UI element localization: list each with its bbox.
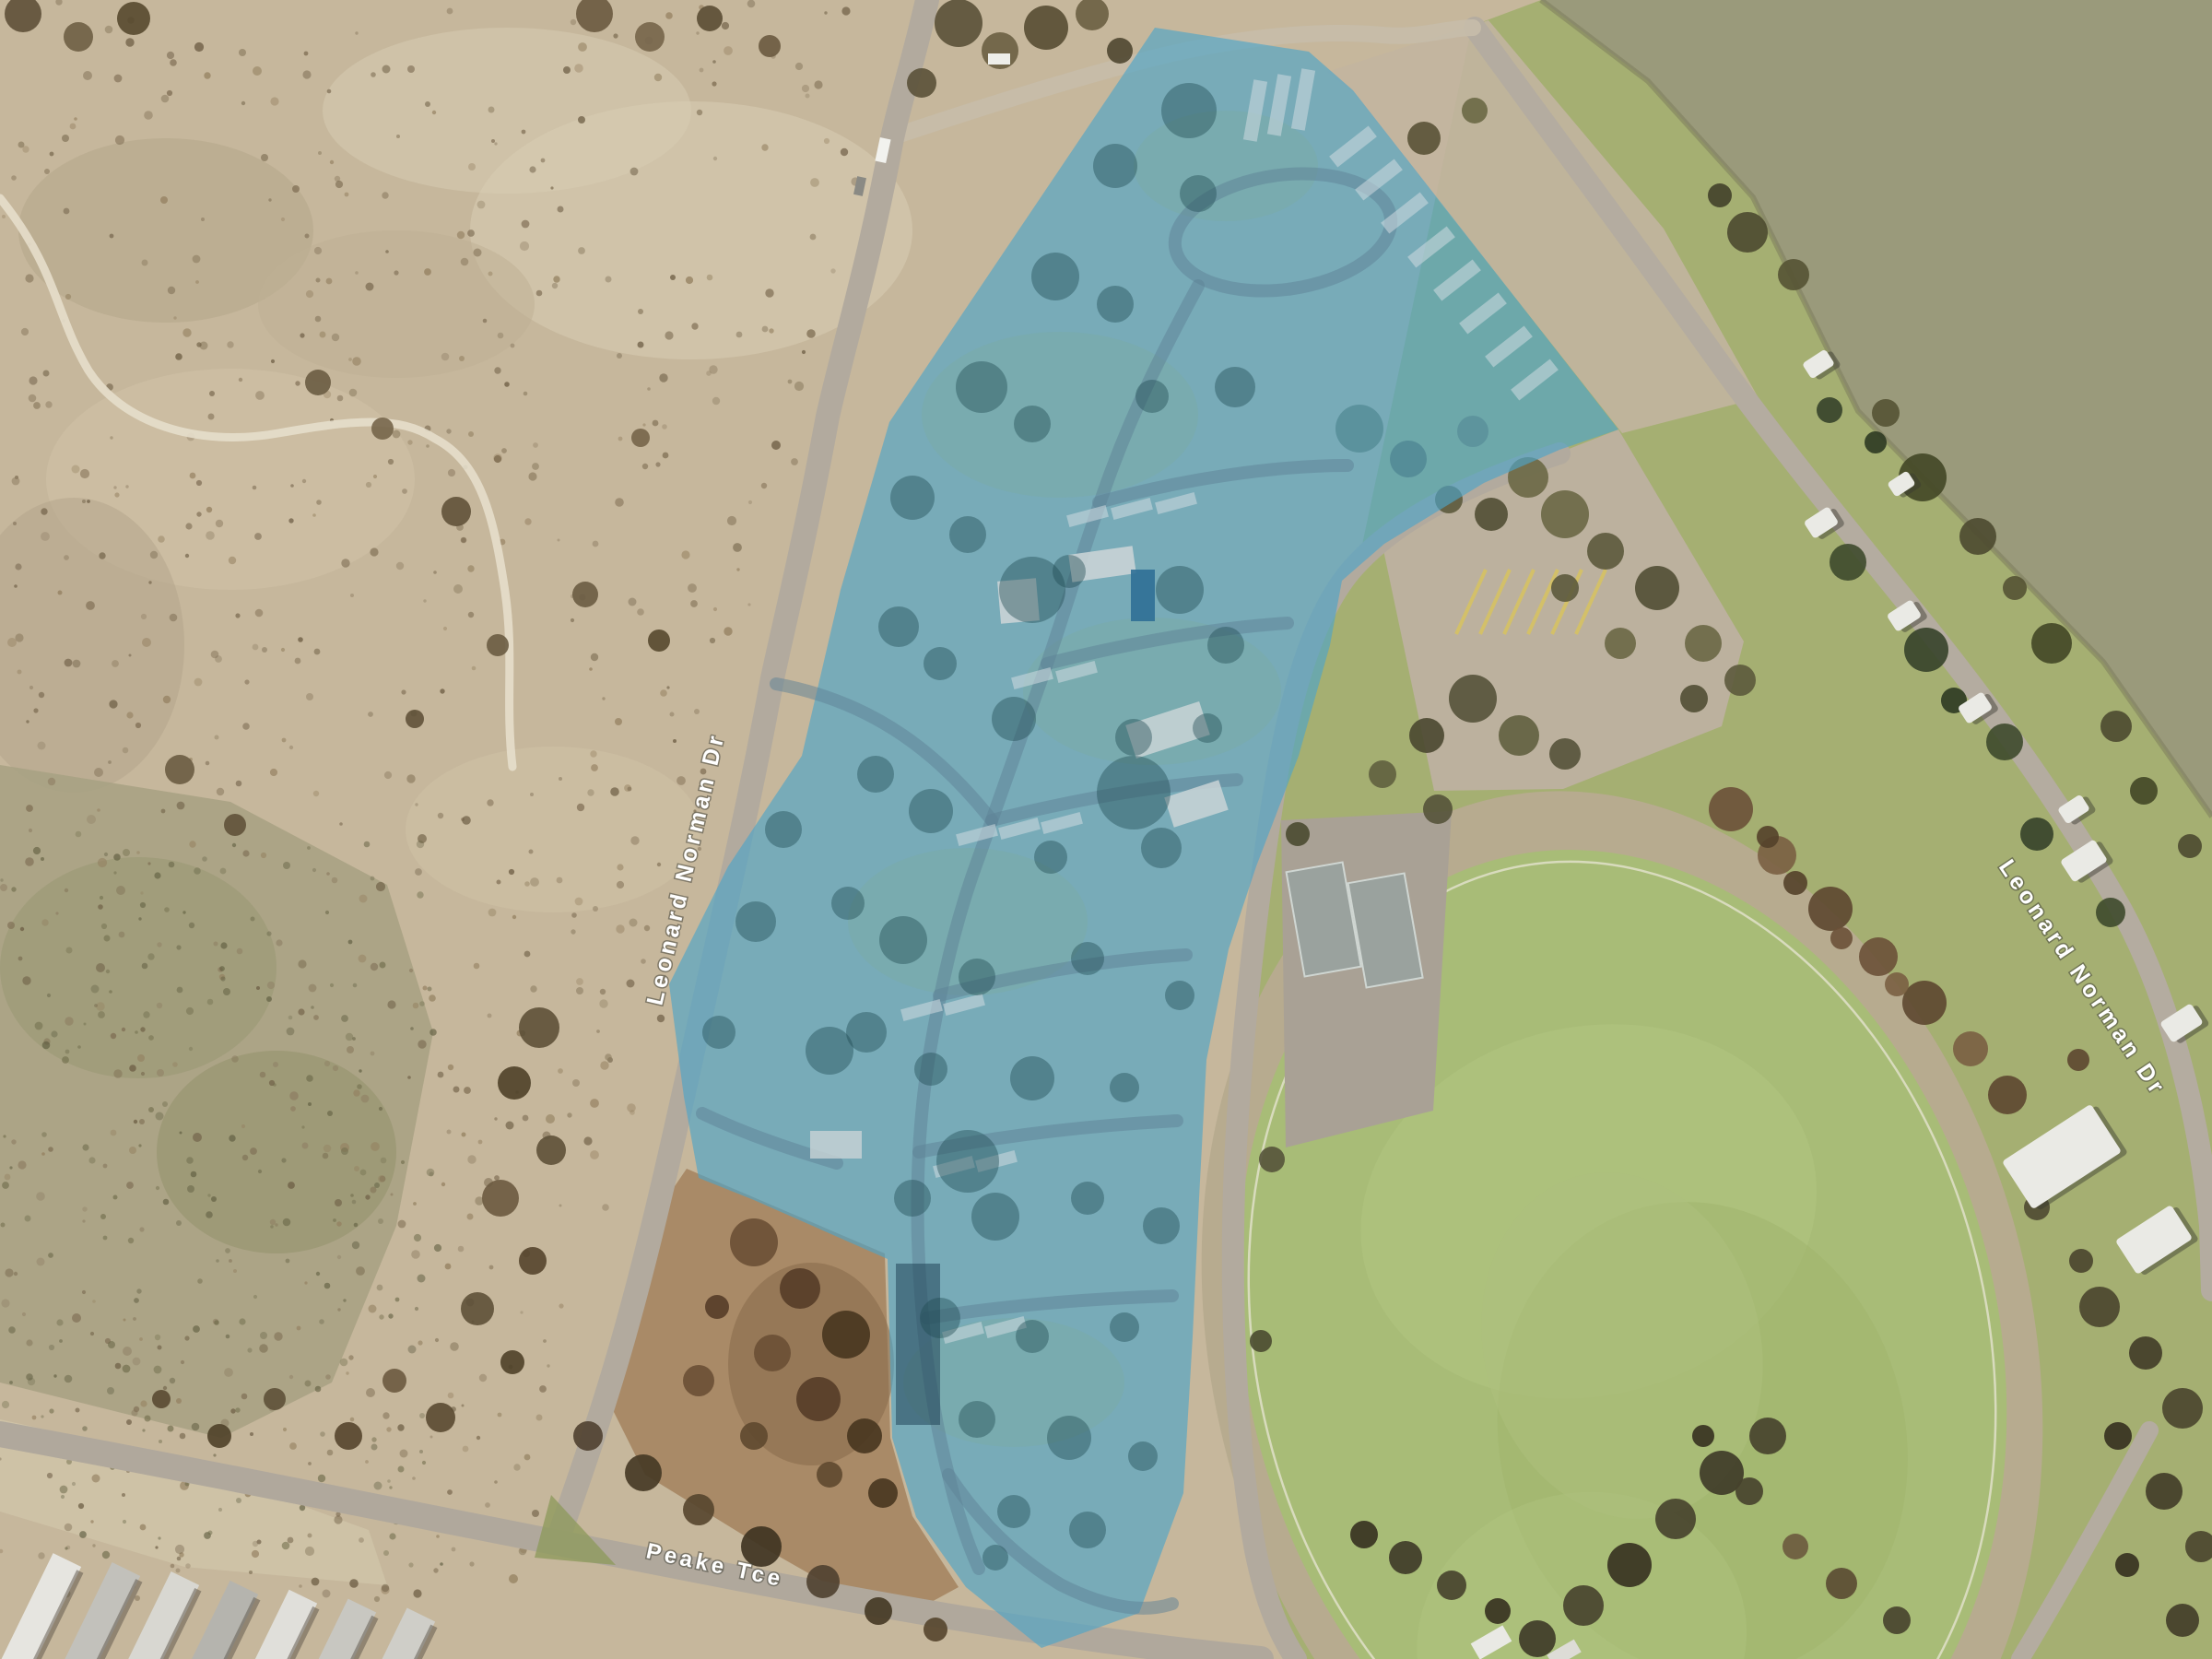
scrub-speckle [282, 738, 287, 743]
scrub-speckle [382, 65, 391, 74]
scrub-speckle [167, 52, 174, 59]
scrub-speckle [189, 1047, 193, 1051]
scrub-speckle [724, 46, 733, 55]
scrub-speckle [194, 867, 201, 875]
scrub-speckle [140, 1400, 147, 1406]
scrub-speckle [158, 1346, 162, 1350]
scrub-speckle [605, 1053, 612, 1061]
scrub-speckle [325, 1374, 331, 1380]
scrub-speckle [700, 68, 704, 73]
scrub-speckle [33, 847, 41, 854]
tree [907, 68, 936, 98]
scrub-speckle [630, 836, 639, 844]
scrub-speckle [415, 1307, 418, 1311]
scrub-speckle [241, 1124, 245, 1128]
scrub-speckle [18, 957, 23, 961]
scrub-speckle [283, 1428, 287, 1431]
scrub-speckle [369, 1305, 377, 1313]
scrub-speckle [522, 220, 530, 229]
scrub-speckle [802, 350, 806, 354]
scrub-speckle [330, 160, 334, 164]
scrub-speckle [474, 963, 480, 970]
scrub-speckle [235, 613, 240, 618]
scrub-speckle [168, 287, 175, 294]
scrub-speckle [733, 543, 742, 552]
scrub-speckle [494, 1175, 500, 1181]
scrub-speckle [214, 942, 218, 947]
scrub-speckle [412, 1477, 416, 1480]
scrub-speckle [111, 1130, 117, 1136]
scrub-speckle [255, 391, 265, 400]
scrub-speckle [824, 138, 829, 144]
scrub-speckle [15, 633, 23, 641]
scrub-speckle [1, 1223, 6, 1228]
scrub-speckle [320, 332, 326, 338]
tree [683, 1365, 714, 1396]
scrub-speckle [409, 969, 413, 972]
tree [648, 629, 670, 652]
scrub-speckle [722, 22, 729, 29]
scrub-speckle [94, 768, 103, 777]
scrub-speckle [242, 850, 249, 856]
tree [519, 1007, 559, 1048]
scrub-speckle [694, 709, 700, 714]
scrub-speckle [366, 482, 371, 488]
scrub-speckle [571, 912, 577, 918]
scrub-speckle [123, 1365, 131, 1373]
scrub-speckle [364, 841, 371, 848]
tree [1462, 98, 1488, 124]
scrub-speckle [295, 381, 300, 385]
park-courts [896, 1264, 940, 1425]
scrub-speckle [241, 101, 245, 105]
scrub-speckle [5, 1268, 13, 1277]
tree [817, 1462, 842, 1488]
scrub-speckle [65, 1524, 73, 1532]
scrub-speckle [26, 1373, 33, 1381]
scrub-speckle [591, 653, 598, 661]
scrub-speckle [376, 882, 385, 891]
park-tree [920, 1298, 960, 1338]
scrub-speckle [712, 81, 716, 86]
tree [697, 6, 723, 31]
park-tree [1069, 1512, 1106, 1548]
scrub-speckle [557, 877, 563, 884]
scrub-speckle [318, 151, 322, 155]
scrub-speckle [353, 983, 358, 988]
scrub-speckle [379, 1107, 382, 1111]
scrub-speckle [163, 696, 171, 703]
scrub-speckle [325, 911, 329, 914]
scrub-speckle [283, 1218, 291, 1227]
scrub-speckle [123, 849, 130, 856]
scrub-speckle [448, 1393, 454, 1399]
scrub-speckle [771, 441, 781, 450]
scrub-speckle [124, 1319, 126, 1322]
scrub-speckle [267, 982, 275, 989]
tree [1817, 397, 1842, 423]
satellite-map-canvas[interactable]: Leonard Norman Dr Leonard Norman Dr Peak… [0, 0, 2212, 1659]
scrub-speckle [298, 1008, 304, 1015]
park-tree [1071, 1182, 1104, 1215]
scrub-speckle [261, 853, 266, 858]
scrub-speckle [5, 1174, 11, 1181]
scrub-speckle [323, 1153, 329, 1159]
scrub-speckle [233, 1269, 237, 1273]
scrub-speckle [628, 787, 632, 792]
scrub-speckle [226, 1335, 230, 1339]
scrub-speckle [94, 1004, 98, 1007]
scrub-speckle [288, 1537, 294, 1544]
tree [1724, 665, 1756, 696]
scrub-speckle [662, 424, 667, 429]
tree [1437, 1571, 1466, 1600]
park-tree [1180, 175, 1217, 212]
scrub-speckle [384, 771, 392, 779]
scrub-speckle [162, 1101, 168, 1107]
tree [868, 1478, 898, 1508]
scrub-speckle [487, 799, 493, 806]
scrub-speckle [91, 985, 100, 994]
scrub-speckle [142, 260, 148, 266]
scrub-speckle [327, 1111, 333, 1116]
scrub-speckle [111, 1033, 116, 1039]
scrub-speckle [567, 1112, 571, 1117]
tree [1692, 1425, 1714, 1447]
scrub-speckle [157, 942, 161, 947]
scrub-speckle [371, 72, 376, 77]
tree [1904, 628, 1948, 672]
tree [2020, 818, 2053, 851]
scrub-speckle [289, 746, 293, 749]
scrub-speckle [25, 274, 33, 282]
scrub-speckle [498, 333, 504, 339]
scrub-speckle [72, 465, 80, 474]
scrub-speckle [143, 1011, 149, 1018]
scrub-speckle [258, 1170, 262, 1173]
scrub-speckle [136, 851, 140, 854]
oval-west-parking [1281, 811, 1452, 1147]
scrub-speckle [354, 1166, 359, 1171]
scrub-speckle [168, 1426, 174, 1432]
scrub-speckle [241, 1394, 248, 1400]
scrub-speckle [224, 1368, 233, 1377]
tree [2166, 1604, 2199, 1637]
scrub-speckle [578, 247, 585, 254]
scrub-speckle [366, 1388, 375, 1397]
scrub-speckle [406, 774, 415, 782]
scrub-speckle [382, 192, 388, 198]
scrub-speckle [113, 1069, 122, 1077]
park-tree [1115, 719, 1152, 756]
scrub-speckle [312, 513, 316, 517]
scrub-speckle [3, 1135, 6, 1137]
scrub-speckle [170, 59, 177, 66]
scrub-speckle [82, 1290, 86, 1294]
park-tree [1010, 1056, 1054, 1100]
scrub-speckle [59, 1339, 63, 1343]
scrub-speckle [688, 583, 697, 593]
scrub-speckle [382, 1584, 389, 1592]
scrub-speckle [546, 1114, 555, 1124]
scrub-speckle [250, 1432, 253, 1436]
park-tree [890, 476, 935, 520]
scrub-speckle [227, 341, 233, 347]
scrub-speckle [154, 872, 160, 878]
scrub-speckle [176, 1569, 181, 1573]
scrub-speckle [352, 1241, 359, 1249]
scrub-speckle [395, 1298, 400, 1302]
scrub-speckle [547, 1364, 549, 1367]
tree [1986, 724, 2023, 760]
scrub-speckle [788, 380, 793, 384]
scrub-speckle [113, 853, 121, 861]
scrub-speckle [762, 326, 769, 333]
scrub-speckle [29, 829, 32, 832]
scrub-speckle [242, 1155, 248, 1160]
scrub-speckle [371, 963, 378, 971]
scrub-speckle [155, 1546, 158, 1548]
scrub-speckle [356, 1266, 365, 1276]
tree [1563, 1585, 1604, 1626]
scrub-speckle [810, 178, 819, 187]
scrub-speckle [45, 401, 52, 407]
scrub-speckle [180, 1433, 186, 1440]
scrub-speckle [237, 948, 243, 955]
scrub-speckle [239, 1318, 245, 1324]
scrub-speckle [348, 358, 352, 361]
scrub-speckle [350, 594, 354, 597]
scrub-speckle [468, 431, 474, 437]
scrub-speckle [374, 1596, 380, 1602]
scrub-speckle [170, 1378, 175, 1383]
scrub-speckle [123, 1347, 132, 1356]
scrub-speckle [666, 686, 669, 688]
scrub-speckle [189, 923, 194, 928]
scrub-speckle [197, 1278, 203, 1284]
tree [625, 1454, 662, 1491]
scrub-speckle [670, 275, 676, 280]
scrub-speckle [352, 1200, 357, 1205]
scrub-speckle [483, 319, 488, 324]
scrub-speckle [761, 144, 768, 150]
scrub-speckle [141, 1072, 145, 1076]
scrub-speckle [423, 986, 428, 991]
scrub-speckle [618, 437, 623, 441]
scrub-speckle [417, 891, 423, 898]
scrub-speckle [136, 1288, 141, 1293]
scrub-speckle [418, 1040, 426, 1048]
scrub-speckle [185, 523, 192, 529]
scrub-speckle [275, 1223, 277, 1226]
park-tree [982, 1545, 1008, 1571]
scrub-speckle [218, 1508, 222, 1512]
scrub-speckle [463, 1446, 469, 1453]
scrub-speckle [374, 1482, 382, 1490]
scrub-speckle [307, 846, 311, 850]
tree [1407, 122, 1441, 155]
scrub-speckle [332, 334, 339, 341]
scrub-speckle [630, 168, 639, 176]
scrub-speckle [637, 608, 644, 616]
scrub-speckle [326, 872, 330, 876]
scrub-speckle [524, 1454, 531, 1461]
scrub-speckle [323, 1590, 331, 1598]
scrub-speckle [125, 485, 128, 488]
scrub-speckle [170, 614, 178, 622]
tree [1830, 927, 1853, 949]
scrub-speckle [2, 1401, 9, 1408]
scrub-speckle [357, 1084, 362, 1089]
scrub-speckle [262, 647, 267, 653]
scrub-speckle [350, 1418, 355, 1422]
scrub-speckle [736, 568, 739, 571]
scrub-speckle [60, 1486, 68, 1494]
scrub-speckle [308, 1462, 312, 1465]
tree [1783, 1534, 1808, 1559]
scrub-speckle [599, 999, 607, 1007]
scrub-speckle [22, 1312, 26, 1316]
scrub-speckle [467, 1155, 476, 1163]
scrub-speckle [26, 1339, 32, 1346]
tree [796, 1377, 841, 1421]
park-tree [1156, 566, 1204, 614]
scrub-speckle [88, 1157, 95, 1163]
scrub-speckle [497, 880, 501, 885]
tree [635, 22, 665, 52]
scrub-speckle [337, 1255, 341, 1259]
scrub-speckle [468, 163, 476, 171]
park-tree [999, 557, 1065, 623]
scrub-speckle [426, 444, 429, 448]
scrub-speckle [533, 442, 538, 448]
scrub-speckle [339, 822, 343, 826]
scrub-speckle [259, 1344, 268, 1353]
scrub-speckle [407, 440, 412, 444]
scrub-speckle [298, 637, 303, 642]
tree [2096, 898, 2125, 927]
scrub-speckle [616, 924, 624, 933]
scrub-speckle [488, 909, 497, 917]
scrub-speckle [647, 387, 651, 391]
tree [1107, 38, 1133, 64]
scrub-speckle [408, 1562, 413, 1567]
scrub-speckle [591, 764, 598, 771]
scrub-speckle [663, 453, 669, 459]
park-tree [765, 811, 802, 848]
scrub-speckle [814, 80, 822, 88]
scrub-speckle [302, 1143, 309, 1149]
scrub-speckle [2, 215, 6, 218]
scrub-speckle [806, 94, 810, 99]
scrub-speckle [713, 607, 717, 611]
scrub-speckle [289, 1375, 293, 1379]
scrub-speckle [90, 1520, 93, 1523]
tree [1286, 822, 1310, 846]
scrub-speckle [0, 878, 3, 881]
scrub-speckle [629, 919, 638, 927]
scrub-speckle [459, 356, 465, 361]
scrub-speckle [638, 309, 643, 314]
scrub-speckle [254, 533, 262, 540]
scrub-speckle [319, 1319, 324, 1324]
scrub-speckle [48, 778, 55, 785]
scrub-speckle [388, 1313, 393, 1318]
scrub-speckle [115, 1363, 122, 1370]
park-tree [1014, 406, 1051, 442]
scrub-speckle [177, 1557, 182, 1561]
scrub-speckle [334, 1515, 342, 1524]
scrub-speckle [236, 781, 242, 787]
scrub-speckle [232, 843, 236, 847]
scrub-speckle [161, 809, 166, 814]
park-tree [959, 959, 995, 995]
scrub-speckle [288, 1016, 293, 1020]
scrub-speckle [141, 614, 147, 619]
park-tree [878, 606, 919, 647]
scrub-speckle [304, 52, 309, 56]
scrub-speckle [103, 1236, 108, 1241]
tree [1808, 887, 1853, 931]
scrub-speckle [441, 353, 450, 361]
scrub-speckle [11, 1139, 16, 1144]
scrub-speckle [578, 42, 587, 52]
scrub-speckle [161, 95, 170, 103]
scrub-speckle [72, 1313, 81, 1323]
scrub-speckle [36, 1192, 45, 1201]
scrub-speckle [61, 1495, 65, 1499]
scrub-speckle [524, 951, 531, 958]
scrub-speckle [66, 947, 73, 954]
tree [806, 1565, 840, 1598]
scrub-speckle [488, 1014, 492, 1018]
scrub-speckle [122, 1028, 125, 1031]
scrub-speckle [407, 1076, 411, 1079]
tree [1680, 685, 1708, 712]
park-tree [894, 1180, 931, 1217]
scrub-speckle [435, 1338, 439, 1342]
tree [2067, 1049, 2089, 1071]
scrub-speckle [106, 970, 110, 973]
scrub-speckle [266, 931, 271, 935]
tree [1423, 794, 1453, 824]
scrub-speckle [103, 1164, 108, 1169]
scrub-speckle [139, 1227, 144, 1231]
scrub-speckle [747, 0, 756, 7]
scrub-speckle [253, 1295, 257, 1299]
scrub-speckle [180, 1132, 182, 1135]
scrub-speckle [398, 1466, 405, 1473]
scrub-speckle [575, 898, 583, 906]
scrub-speckle [536, 290, 543, 297]
scrub-speckle [324, 1283, 331, 1289]
scrub-speckle [125, 38, 134, 46]
tree [1859, 937, 1898, 976]
scrub-speckle [352, 357, 361, 366]
scrub-speckle [185, 554, 189, 558]
scrub-speckle [64, 208, 70, 215]
scrub-speckle [109, 990, 112, 994]
scrub-speckle [247, 1347, 252, 1352]
scrub-speckle [38, 1552, 44, 1559]
scrub-speckle [8, 1326, 16, 1334]
scrub-speckle [474, 249, 482, 257]
scrub-speckle [220, 976, 225, 981]
scrub-speckle [56, 1319, 63, 1325]
scrub-speckle [596, 1030, 600, 1033]
scrub-speckle [213, 1453, 216, 1456]
scrub-speckle [220, 942, 227, 948]
